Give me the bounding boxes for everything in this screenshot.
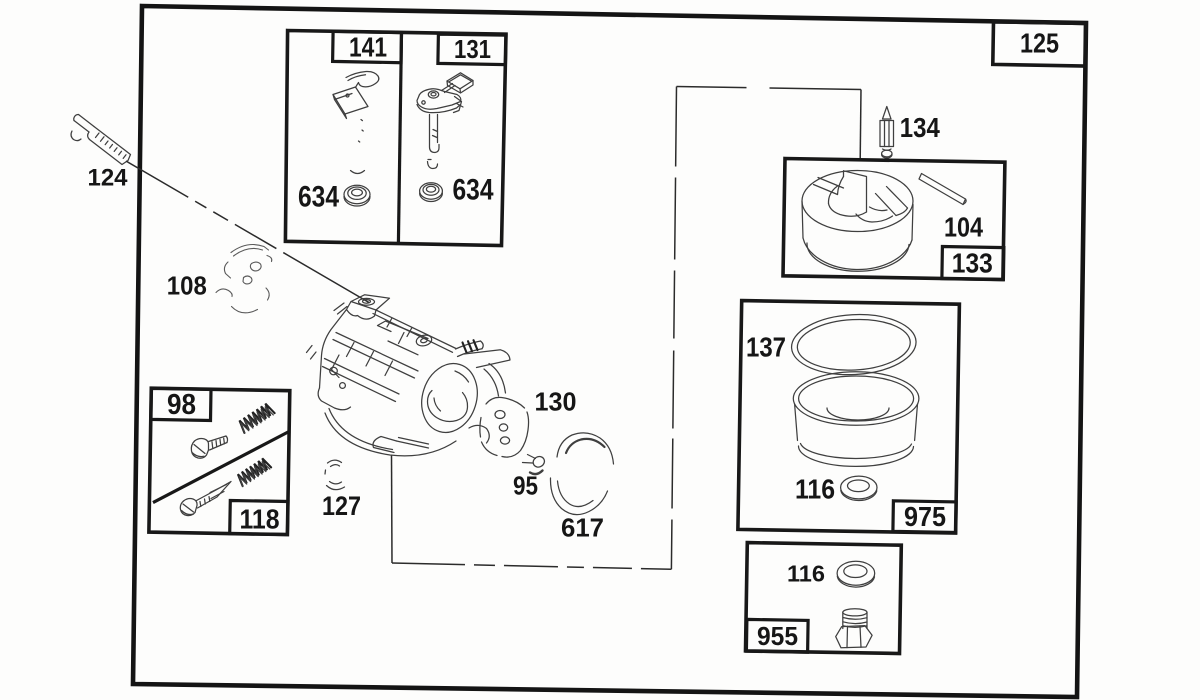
svg-text:634: 634 — [298, 181, 339, 214]
svg-text:975: 975 — [904, 501, 946, 532]
svg-text:131: 131 — [454, 34, 491, 64]
svg-text:118: 118 — [240, 504, 280, 535]
svg-text:130: 130 — [535, 387, 577, 417]
svg-text:634: 634 — [453, 174, 494, 207]
svg-text:116: 116 — [787, 561, 825, 587]
svg-text:133: 133 — [952, 248, 993, 279]
svg-text:124: 124 — [88, 165, 129, 192]
svg-text:127: 127 — [322, 491, 361, 521]
svg-text:116: 116 — [795, 474, 835, 505]
svg-text:104: 104 — [944, 212, 983, 243]
svg-text:95: 95 — [513, 471, 538, 501]
svg-text:955: 955 — [757, 621, 798, 651]
svg-text:98: 98 — [167, 389, 196, 421]
svg-text:617: 617 — [561, 513, 604, 543]
svg-text:134: 134 — [900, 112, 940, 143]
svg-text:137: 137 — [746, 332, 786, 363]
svg-text:108: 108 — [167, 271, 207, 301]
svg-text:125: 125 — [1020, 28, 1059, 59]
svg-text:141: 141 — [349, 32, 387, 63]
